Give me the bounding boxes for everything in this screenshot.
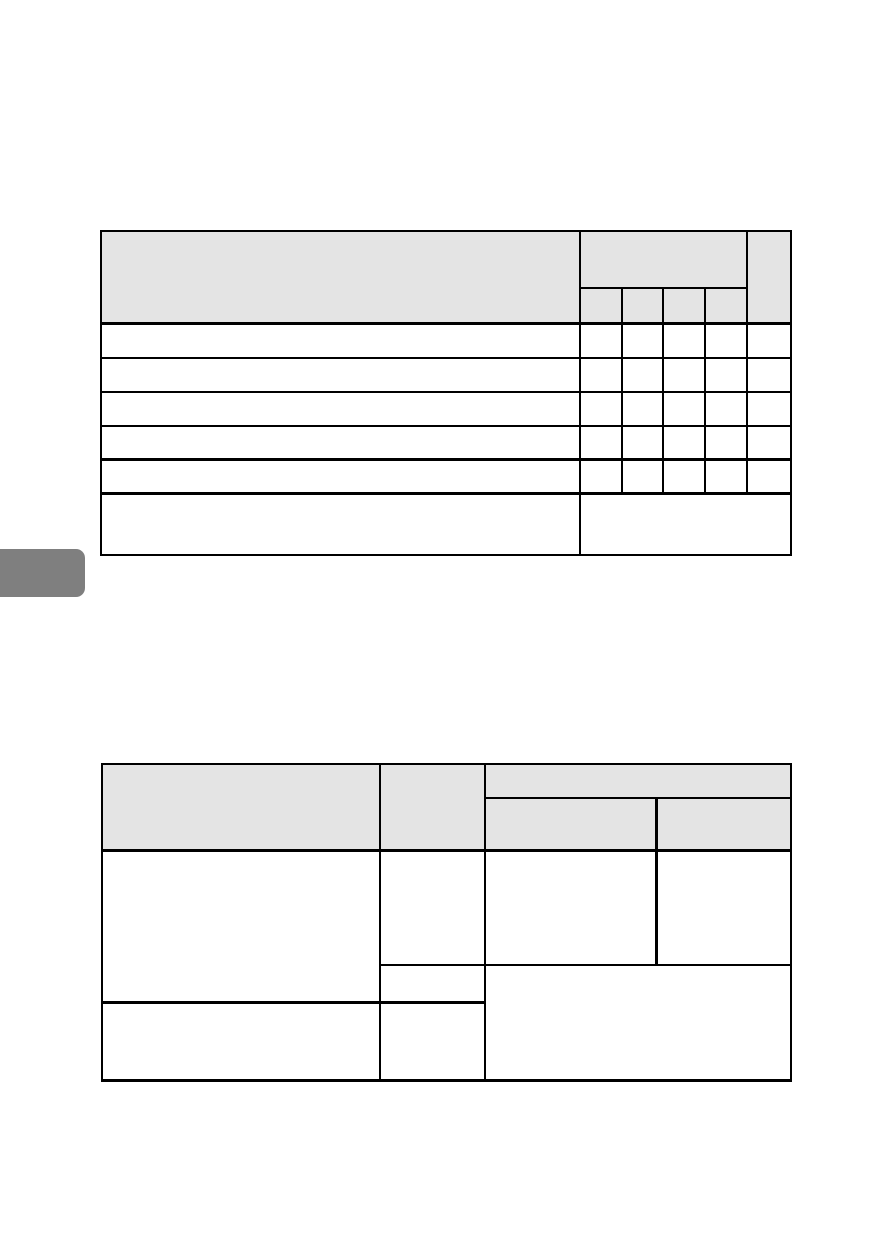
top-table-body-r3c1 [100, 392, 580, 426]
top-table-vline-main [579, 230, 581, 556]
top-table-body-r1c1 [100, 324, 580, 358]
bottom-table-vline-1 [379, 763, 381, 1082]
top-table-body-r2c2 [580, 358, 622, 392]
chapter-side-tab [0, 549, 85, 597]
top-table-row-line-4-thick [100, 458, 792, 461]
bottom-table-body-merged-bottom-right [485, 965, 792, 1082]
bottom-table-body-c2-r1 [380, 851, 485, 965]
top-table-body-r3c3 [622, 392, 663, 426]
bottom-table-header-cell-sub1 [485, 798, 657, 851]
top-table-body-r3c5 [705, 392, 747, 426]
top-table-vline-sub2 [662, 287, 664, 494]
top-table-body-r1c5 [705, 324, 747, 358]
top-table-body-r4c2 [580, 426, 622, 460]
top-table-body-r2c4 [663, 358, 705, 392]
top-table-group-divider [580, 287, 748, 289]
top-table-border-top [100, 230, 792, 232]
top-table-body-r2c6 [747, 358, 792, 392]
top-table-body-r3c2 [580, 392, 622, 426]
top-table-body-r1c6 [747, 324, 792, 358]
top-table-header-cell-last [747, 230, 792, 324]
top-table-body-r5c6 [747, 460, 792, 494]
top-table-border-right [790, 230, 792, 556]
top-table-border-bottom [100, 554, 792, 556]
top-table-row-line-3 [100, 425, 792, 427]
bottom-table-body-c3-r1 [485, 851, 657, 965]
top-table-row-line-5-thick [100, 492, 792, 495]
top-table-header-cell-sub2 [622, 288, 663, 324]
top-table-header-cell-sub3 [663, 288, 705, 324]
bottom-table-body-c1-r2 [101, 1003, 380, 1082]
top-table-body-r5c4 [663, 460, 705, 494]
top-table-vline-last [746, 230, 748, 494]
top-table-body-r5c3 [622, 460, 663, 494]
bottom-table-border-top [101, 763, 792, 765]
bottom-table-header-cell-sub2 [657, 798, 792, 851]
top-table-header-cell-sub1 [580, 288, 622, 324]
top-table-body-r3c6 [747, 392, 792, 426]
bottom-table-body-c2-r2 [380, 965, 485, 1003]
top-table-body-r3c4 [663, 392, 705, 426]
top-table-body-r5c5 [705, 460, 747, 494]
top-table-body-r5c1 [100, 460, 580, 494]
page [0, 0, 894, 1260]
bottom-table-border-left [101, 763, 103, 1082]
top-table-body-r1c3 [622, 324, 663, 358]
bottom-table-vline-sub [655, 797, 658, 965]
top-table-vline-sub3 [704, 287, 706, 494]
top-table-body-r2c1 [100, 358, 580, 392]
top-table-row-line-1 [100, 357, 792, 359]
top-table-footer-merged [580, 494, 792, 556]
top-table-body-r4c3 [622, 426, 663, 460]
bottom-table-thick-left-line [101, 1001, 485, 1004]
bottom-table [101, 763, 792, 1082]
top-table-row-line-2 [100, 391, 792, 393]
top-table-body-r4c4 [663, 426, 705, 460]
top-table-body-r1c2 [580, 324, 622, 358]
bottom-table-header-bottom-line [101, 849, 792, 852]
bottom-table-body-c2-r3 [380, 1003, 485, 1082]
top-table-header-cell-sub4 [705, 288, 747, 324]
top-table-body-r2c3 [622, 358, 663, 392]
bottom-table-header-cell-2 [380, 763, 485, 851]
top-table-body-r4c5 [705, 426, 747, 460]
top-table-body-r5c2 [580, 460, 622, 494]
top-table [100, 230, 792, 556]
bottom-table-vline-2 [484, 763, 486, 1082]
top-table-body-r4c6 [747, 426, 792, 460]
bottom-table-mid-line [380, 964, 792, 966]
top-table-body-r2c5 [705, 358, 747, 392]
bottom-table-body-c4-r1 [657, 851, 792, 965]
top-table-header-cell-group [580, 230, 747, 288]
top-table-body-r4c1 [100, 426, 580, 460]
bottom-table-border-right [790, 763, 792, 1082]
top-table-vline-sub1 [621, 287, 623, 494]
top-table-body-r1c4 [663, 324, 705, 358]
bottom-table-border-bottom [101, 1079, 792, 1082]
bottom-table-group-divider [485, 797, 792, 799]
top-table-header-bottom-line [100, 322, 792, 325]
bottom-table-body-c1-r1 [101, 851, 380, 1003]
bottom-table-header-cell-1 [101, 763, 380, 851]
top-table-border-left [100, 230, 102, 556]
top-table-footer-left [100, 494, 580, 556]
top-table-header-cell-main [100, 230, 580, 324]
bottom-table-header-cell-group [485, 763, 792, 798]
